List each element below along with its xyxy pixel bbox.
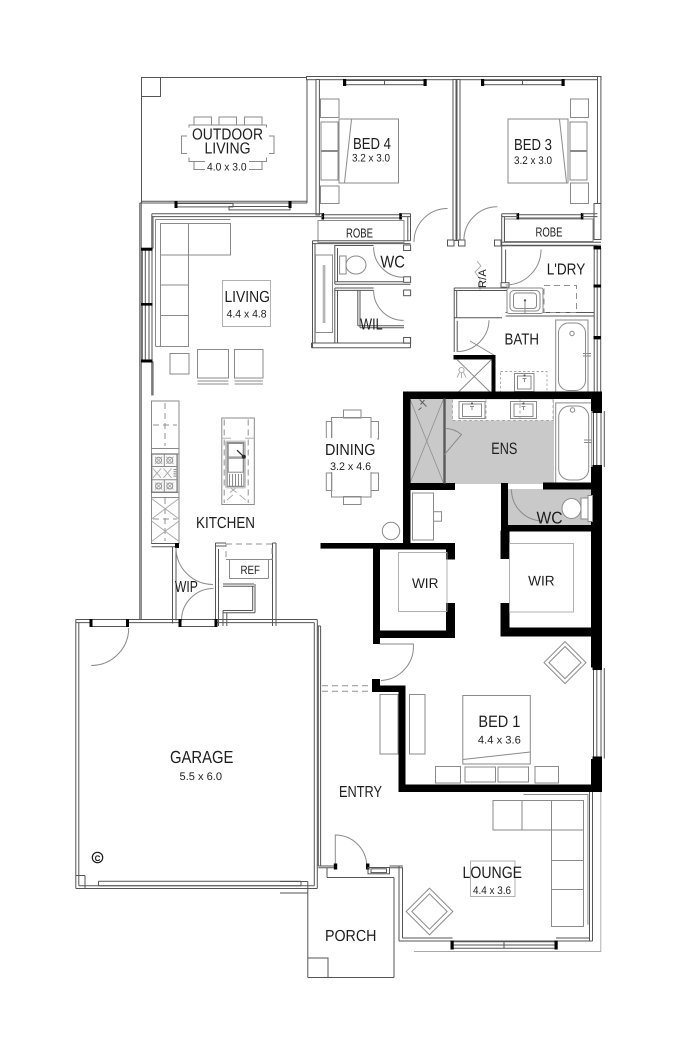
svg-text:LIVING: LIVING: [205, 141, 251, 158]
svg-text:5.5 x 6.0: 5.5 x 6.0: [180, 771, 223, 783]
svg-text:3.2 x 3.0: 3.2 x 3.0: [514, 155, 552, 167]
svg-text:BED 1: BED 1: [478, 713, 520, 731]
svg-text:4.4 x 4.8: 4.4 x 4.8: [227, 309, 267, 321]
svg-text:GARAGE: GARAGE: [170, 747, 234, 767]
svg-text:BATH: BATH: [504, 331, 539, 348]
svg-text:KITCHEN: KITCHEN: [196, 515, 255, 532]
svg-text:R/A: R/A: [477, 269, 489, 288]
svg-text:ROBE: ROBE: [536, 225, 563, 240]
svg-text:WC: WC: [380, 252, 405, 271]
svg-text:C: C: [95, 854, 101, 863]
svg-text:4.0 x 3.0: 4.0 x 3.0: [207, 162, 247, 174]
svg-text:ENTRY: ENTRY: [339, 784, 382, 801]
svg-text:LIVING: LIVING: [224, 289, 270, 306]
svg-text:ROBE: ROBE: [346, 225, 373, 240]
svg-text:3.2 x 4.6: 3.2 x 4.6: [330, 461, 371, 473]
svg-text:PORCH: PORCH: [325, 928, 377, 945]
svg-text:WC: WC: [537, 508, 563, 527]
svg-text:REF: REF: [240, 563, 260, 577]
svg-text:ENS: ENS: [491, 440, 517, 458]
svg-text:WIR: WIR: [528, 573, 555, 589]
svg-text:BED 4: BED 4: [353, 136, 391, 153]
svg-text:WIL: WIL: [360, 317, 383, 334]
svg-text:L'DRY: L'DRY: [547, 262, 586, 279]
svg-text:BED 3: BED 3: [514, 137, 552, 154]
svg-text:3.2 x 3.0: 3.2 x 3.0: [352, 153, 390, 165]
svg-text:DINING: DINING: [325, 442, 376, 459]
svg-text:4.4 x 3.6: 4.4 x 3.6: [478, 734, 521, 746]
svg-text:WIR: WIR: [412, 575, 439, 591]
svg-text:WIP: WIP: [175, 579, 198, 596]
svg-text:LOUNGE: LOUNGE: [463, 864, 523, 882]
svg-text:4.4 x 3.6: 4.4 x 3.6: [473, 885, 511, 897]
